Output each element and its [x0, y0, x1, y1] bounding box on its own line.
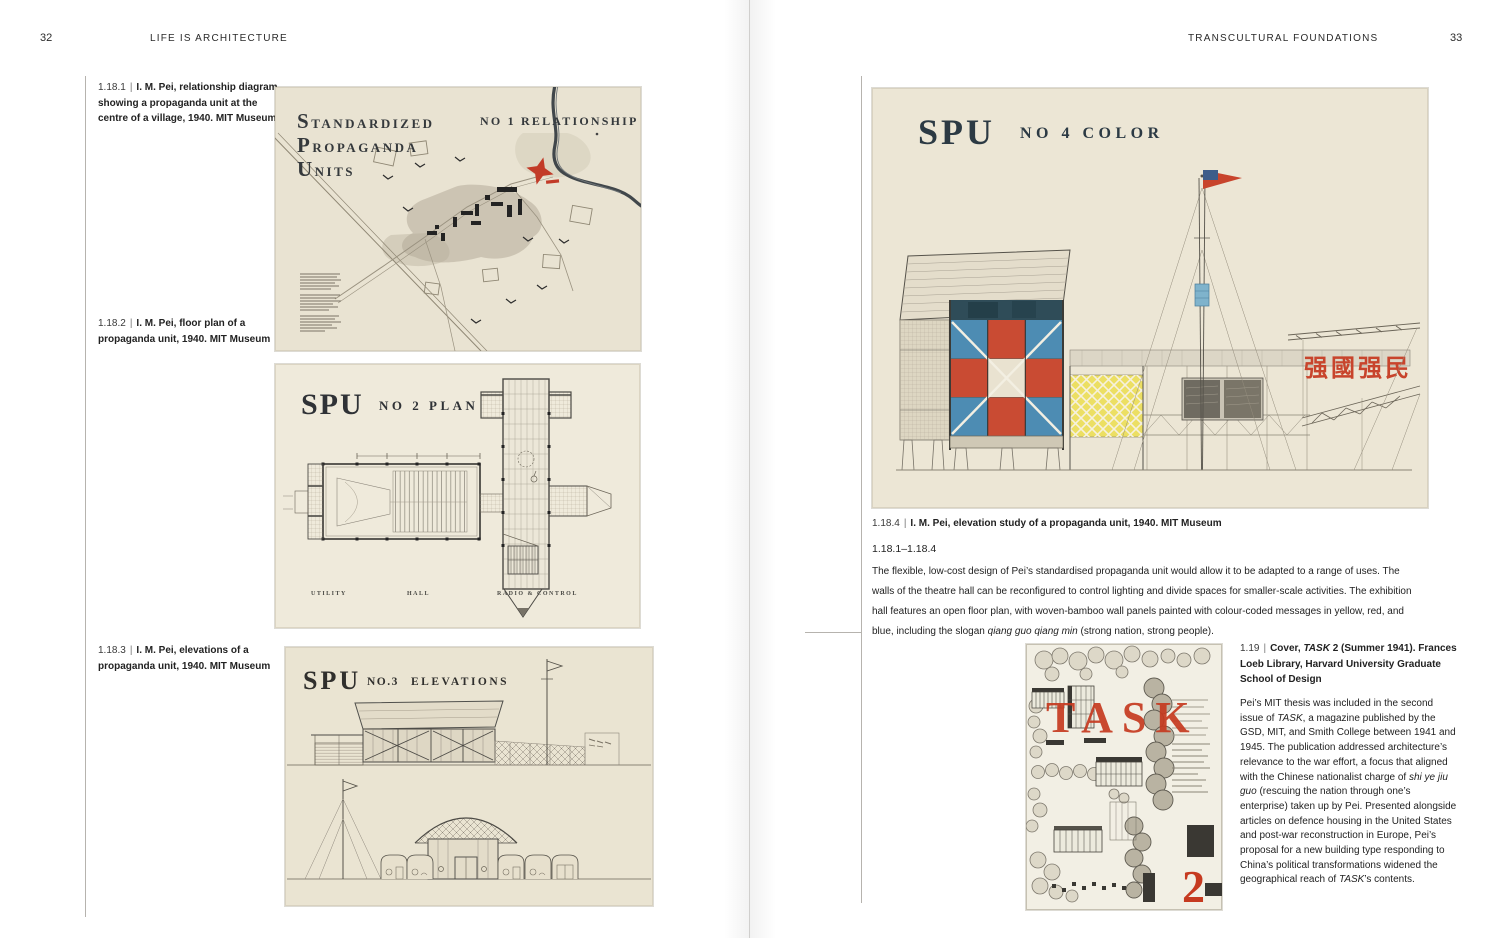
book-spread: 32 LIFE IS ARCHITECTURE TRANSCULTURAL FO… — [0, 0, 1500, 938]
figure-1-18-1-artwork: STANDARDIZED PROPAGANDA UNITS NO 1 RELAT… — [275, 87, 641, 351]
figure-1-18-4-artwork: SPU NO 4 COLOR — [872, 88, 1428, 508]
caption-1-18-1: 1.18.1|I. M. Pei, relationship diagram s… — [98, 80, 280, 127]
fig1-heading: NO 1 RELATIONSHIP — [480, 114, 639, 128]
running-head-right: TRANSCULTURAL FOUNDATIONS — [1188, 33, 1378, 44]
caption-1-18-4: 1.18.4|I. M. Pei, elevation study of a p… — [872, 516, 1432, 532]
figure-range-heading: 1.18.1–1.18.4 — [872, 543, 1424, 555]
commentary-1-18: 1.18.1–1.18.4 The flexible, low-cost des… — [872, 543, 1424, 642]
caption-text: Cover, TASK 2 (Summer 1941). Frances Loe… — [1240, 643, 1457, 685]
gutter-shadow-left — [724, 0, 750, 938]
section-divider — [805, 632, 861, 633]
fig2-label-utility: UTILITY — [311, 591, 347, 597]
fig4-heading: NO 4 COLOR — [1020, 125, 1164, 142]
figure-1-18-3-artwork: SPU NO.3 ELEVATIONS — [285, 647, 653, 906]
caption-text: I. M. Pei, elevation study of a propagan… — [910, 518, 1221, 529]
gutter-line — [749, 0, 750, 938]
fig3-title: SPU — [303, 666, 361, 695]
task-masthead: TASK — [1046, 693, 1199, 742]
caption-1-18-2: 1.18.2|I. M. Pei, floor plan of a propag… — [98, 316, 280, 347]
fig4-slogan: 强國强民 — [1304, 356, 1412, 382]
task-cover-artwork: TASK 2 — [1026, 644, 1222, 910]
figure-number: 1.18.3 — [98, 645, 126, 656]
running-head-left: LIFE IS ARCHITECTURE — [150, 33, 288, 44]
figure-number: 1.18.1 — [98, 82, 126, 93]
column-rule-left-page — [85, 76, 86, 917]
fig2-label-radio-control: RADIO & CONTROL — [497, 591, 578, 597]
figure-1-18-2-artwork: SPU NO 2 PLAN — [275, 364, 640, 628]
fig2-label-hall: HALL — [407, 591, 430, 597]
caption-1-19: 1.19|Cover, TASK 2 (Summer 1941). France… — [1240, 641, 1462, 688]
figure-number: 1.18.4 — [872, 518, 900, 529]
column-rule-right-page — [861, 76, 862, 903]
figure-number: 1.19 — [1240, 643, 1259, 654]
commentary-paragraph: The flexible, low-cost design of Pei’s s… — [872, 562, 1424, 642]
sidebar-paragraph-1-19: Pei’s MIT thesis was included in the sec… — [1240, 697, 1458, 888]
page-number-right: 33 — [1450, 32, 1462, 44]
fig4-title: SPU — [918, 112, 995, 152]
figure-number: 1.18.2 — [98, 318, 126, 329]
page-number-left: 32 — [40, 32, 52, 44]
task-issue-number: 2 — [1182, 861, 1205, 910]
fig2-title: SPU — [301, 388, 364, 421]
fig3-heading: ELEVATIONS — [411, 676, 509, 688]
caption-1-18-3: 1.18.3|I. M. Pei, elevations of a propag… — [98, 643, 280, 674]
gutter-shadow-right — [750, 0, 776, 938]
fig3-heading-no: NO.3 — [367, 676, 399, 688]
fig2-heading: NO 2 PLAN — [379, 398, 478, 413]
